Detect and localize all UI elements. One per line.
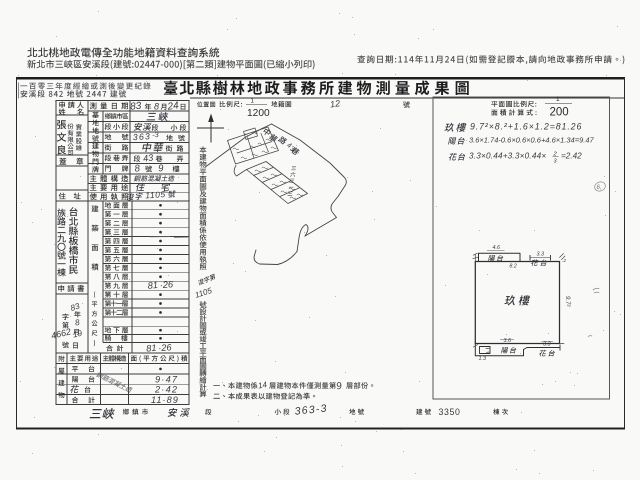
svg-text:·26: ·26 [159, 279, 174, 290]
svg-text:2·42: 2·42 [154, 385, 178, 395]
svg-text:11·89: 11·89 [151, 395, 179, 405]
svg-text:3350: 3350 [439, 407, 461, 417]
svg-text:6,: 6, [597, 185, 602, 191]
svg-text:9.7²: 9.7² [564, 296, 570, 307]
svg-text:9·47: 9·47 [155, 374, 178, 384]
svg-text:-3: -3 [152, 130, 159, 140]
svg-text:81: 81 [147, 280, 158, 291]
svg-text:363: 363 [132, 131, 151, 142]
svg-text:1200: 1200 [247, 108, 270, 119]
svg-text:8: 8 [154, 102, 159, 112]
svg-text:1: 1 [251, 98, 255, 105]
svg-text:81: 81 [146, 343, 157, 354]
svg-text:3.6×1.74-0.6×0.6×0.6+4.6×1.34=: 3.6×1.74-0.6×0.6×0.6+4.6×1.34=9.47 [469, 135, 595, 144]
svg-text:3.3: 3.3 [543, 341, 551, 347]
svg-text:4.6: 4.6 [493, 245, 501, 251]
svg-text:3.3×0.44+3.3×0.44×: 3.3×0.44+3.3×0.44× [469, 151, 546, 160]
svg-text:.2: .2 [562, 258, 566, 264]
svg-text:3.3: 3.3 [537, 252, 545, 258]
svg-text:12: 12 [329, 98, 340, 109]
svg-text:8.2: 8.2 [510, 263, 517, 269]
svg-text:1.3: 1.3 [479, 356, 487, 362]
svg-text:24: 24 [166, 100, 180, 113]
svg-text:=2.42: =2.42 [561, 151, 582, 160]
svg-text:·26: ·26 [158, 342, 173, 353]
svg-text:83: 83 [130, 101, 143, 113]
svg-text:200: 200 [550, 107, 569, 119]
svg-text:3.6: 3.6 [504, 338, 512, 344]
svg-text:1: 1 [556, 96, 560, 103]
svg-text:1105: 1105 [145, 189, 166, 200]
svg-text:9.7²×8.²+1.6×1.2=81.26: 9.7²×8.²+1.6×1.2=81.26 [470, 121, 582, 131]
